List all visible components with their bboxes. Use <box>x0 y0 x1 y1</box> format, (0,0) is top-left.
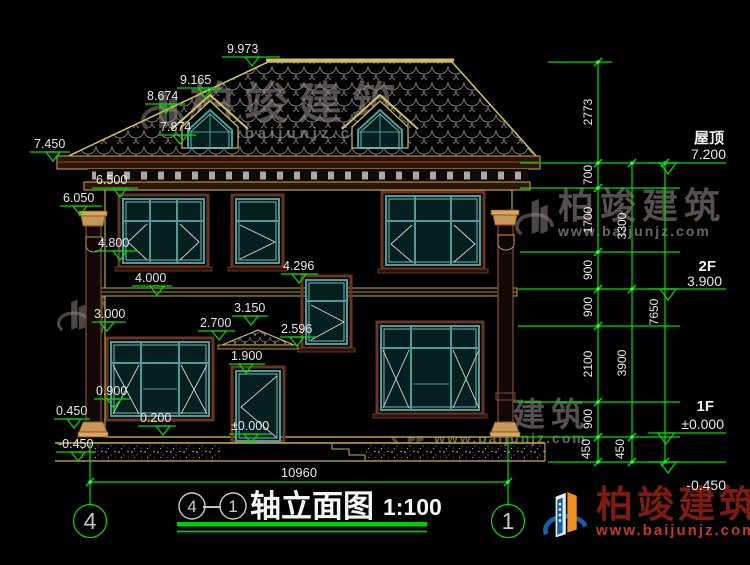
level-text: 2.700 <box>200 316 231 330</box>
axis-number: 4 <box>84 508 97 534</box>
dim-value: 1700 <box>581 206 595 233</box>
level-text: 8.674 <box>147 89 178 103</box>
level-text: 9.973 <box>227 42 258 56</box>
dim-value: 450 <box>579 439 593 459</box>
title-axis-number: 1 <box>228 497 237 516</box>
level-text: 0.900 <box>96 384 127 398</box>
cornice <box>84 182 530 190</box>
drawing-scale: 1:100 <box>383 494 442 520</box>
title-underline-thick <box>177 522 427 527</box>
level-text: ±0.000 <box>231 419 269 433</box>
level-text: 3.150 <box>234 301 265 315</box>
level-text: -0.450 <box>58 437 93 451</box>
level-text: 7.874 <box>160 120 191 134</box>
dim-value: 900 <box>581 409 595 429</box>
total-width-dimension: 10960 <box>281 465 317 480</box>
entry-steps <box>332 444 365 461</box>
dim-value: 900 <box>581 260 595 280</box>
title-dash: — <box>203 496 221 516</box>
dim-value: 450 <box>613 439 627 459</box>
level-text: 4.296 <box>283 259 314 273</box>
floor-name: 1F <box>696 398 714 415</box>
title-block: 4 — 1 轴立面图 1:100 <box>177 489 442 532</box>
dim-value: 3300 <box>615 212 629 239</box>
stair-window <box>298 276 355 352</box>
eave-fascia <box>57 156 540 169</box>
axis-number: 1 <box>502 508 515 534</box>
floor-label-roof: 屋顶 7.200 <box>648 130 726 174</box>
window-1f-left <box>107 338 213 420</box>
drawing-title: 轴立面图 <box>250 489 374 524</box>
ground-hatch-right <box>366 444 545 460</box>
floor-elevation: ±0.000 <box>681 416 724 432</box>
floor-elevation: 7.200 <box>691 146 726 162</box>
level-text: 9.165 <box>180 73 211 87</box>
level-text: 4.000 <box>135 271 166 285</box>
title-axis-number: 4 <box>187 497 196 516</box>
dim-value: 3900 <box>615 349 629 376</box>
cad-elevation-canvas: 柏竣建筑 www.baijunjz.com 柏竣建筑 www.baijunjz.… <box>0 0 750 565</box>
level-text: 7.450 <box>34 137 65 151</box>
entry-platform <box>222 444 332 460</box>
window-1f-right <box>373 322 487 418</box>
window-2f-middle <box>228 195 287 271</box>
dim-value: 7650 <box>647 298 661 325</box>
dim-value: 700 <box>581 165 595 185</box>
dentil-band <box>88 169 528 182</box>
level-text: 0.200 <box>140 411 171 425</box>
dim-value: 2100 <box>581 350 595 377</box>
axis-bubble-1: 1 <box>492 505 525 538</box>
dim-value: 2773 <box>581 98 595 125</box>
level-text: 6.500 <box>96 173 127 187</box>
elevation-drawing: 9.973 9.165 8.674 7.874 7.450 6.500 6.05… <box>0 0 750 565</box>
floor-elevation: 3.900 <box>687 273 722 289</box>
level-text: 4.800 <box>98 236 129 250</box>
floor-label-2f: 2F 3.900 <box>648 258 726 300</box>
ground-hatch-left <box>78 444 222 460</box>
dim-chain-right: 2773 700 1700 900 900 2100 900 450 3300 … <box>518 58 680 466</box>
floor-elevation: -0.450 <box>686 477 726 493</box>
level-text: 3.000 <box>94 307 125 321</box>
level-text: 6.050 <box>63 191 94 205</box>
roof <box>60 60 538 160</box>
ground <box>55 443 545 461</box>
axis-bubble-4: 4 <box>74 505 107 538</box>
window-2f-right <box>378 192 488 273</box>
level-text: 1.900 <box>231 349 262 363</box>
floor-label-ground: -0.450 <box>648 462 726 493</box>
level-text: 2.596 <box>281 322 312 336</box>
level-text: 0.450 <box>56 404 87 418</box>
window-2f-left <box>115 195 212 271</box>
dim-value: 900 <box>581 297 595 317</box>
floor-name: 屋顶 <box>694 130 724 147</box>
